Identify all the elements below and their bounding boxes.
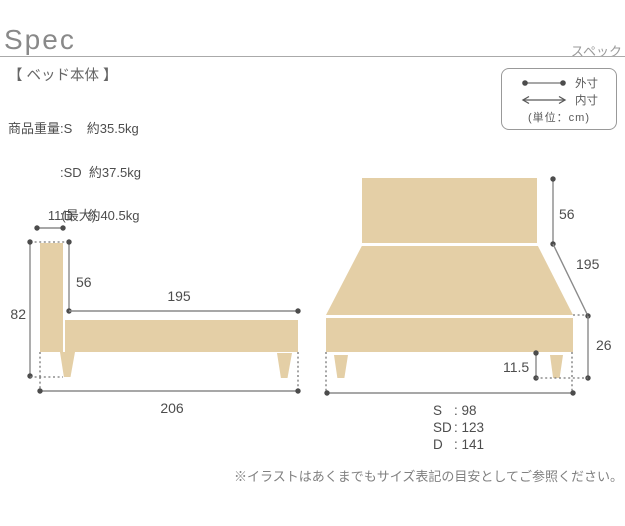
width-size-value: : 141 — [454, 436, 484, 453]
legend-unit: (単位：cm) — [528, 109, 590, 125]
page-title: Spec — [4, 24, 76, 56]
dimension-legend-box: 外寸 内寸 (単位：cm) — [501, 68, 617, 130]
product-weight-block: 商品重量:S 約35.5kg :SD 約37.5kg :D 約40.5kg — [8, 93, 141, 253]
side-total-height-label: 82 — [2, 306, 26, 322]
width-size-value: : 98 — [454, 402, 477, 419]
side-view-frame — [65, 320, 298, 352]
front-length-label: 195 — [576, 256, 599, 272]
inner-dimension-icon — [520, 95, 568, 105]
weight-row: :SD 約37.5kg — [60, 166, 141, 181]
side-view-front-leg — [60, 352, 75, 377]
width-row-s: S: 98 — [433, 402, 484, 419]
front-view-headboard — [362, 178, 537, 243]
width-size-label: SD — [433, 419, 454, 436]
width-size-label: S — [433, 402, 454, 419]
side-total-length-label: 206 — [150, 400, 194, 416]
width-size-value: : 123 — [454, 419, 484, 436]
front-view-right-leg — [550, 355, 563, 378]
side-view-rear-leg — [277, 353, 292, 378]
legend-outer-row: 外寸 — [520, 75, 598, 91]
legend-inner-label: 内寸 — [575, 92, 598, 108]
front-view-deck — [326, 246, 573, 315]
page-title-kana: スペック — [571, 41, 622, 60]
width-row-sd: SD: 123 — [433, 419, 484, 436]
legend-outer-label: 外寸 — [575, 75, 598, 91]
front-view-base — [326, 318, 573, 352]
title-divider — [0, 56, 625, 57]
front-width-table: S: 98 SD: 123 D: 141 — [433, 402, 484, 453]
weight-row: 商品重量:S 約35.5kg — [8, 122, 141, 137]
width-size-label: D — [433, 436, 454, 453]
outer-dimension-icon — [520, 78, 568, 88]
front-base-height-label: 26 — [596, 337, 612, 353]
section-heading: 【 ベッド本体 】 — [8, 64, 118, 85]
front-headboard-height-label: 56 — [559, 206, 575, 222]
size-disclaimer-note: ※イラストはあくまでもサイズ表記の目安としてご参照ください。 — [234, 466, 623, 485]
spec-section: Spec スペック 【 ベッド本体 】 商品重量:S 約35.5kg :SD 約… — [0, 0, 625, 526]
weight-value-s: :S 約35.5kg — [60, 121, 139, 136]
weight-label: 商品重量 — [8, 122, 60, 137]
width-row-d: D: 141 — [433, 436, 484, 453]
side-view-headboard — [40, 243, 63, 352]
weight-value-sd: :SD 約37.5kg — [60, 165, 141, 180]
side-headboard-above-frame-label: 56 — [76, 274, 92, 290]
side-headboard-width-label: 11(最大) — [34, 205, 110, 224]
front-view-left-leg — [334, 355, 348, 378]
legend-inner-row: 内寸 — [520, 92, 598, 108]
side-inner-length-label: 195 — [158, 288, 200, 304]
front-leg-height-label: 11.5 — [503, 359, 529, 375]
